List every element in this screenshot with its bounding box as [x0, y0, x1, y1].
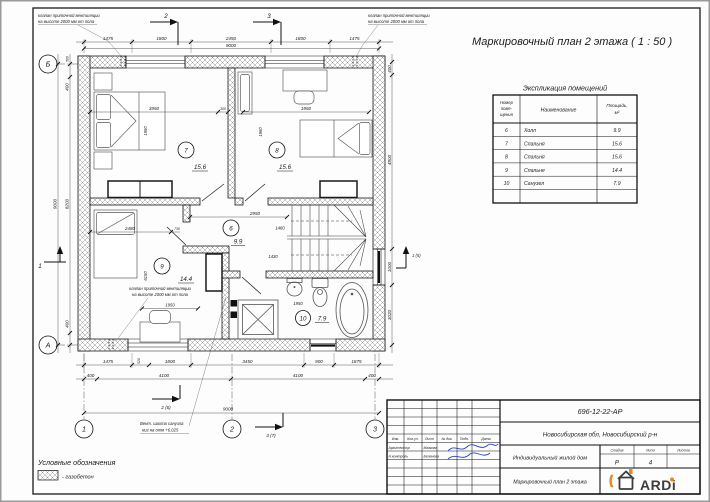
note-vent-valve: на высоте 2000 мм от пола [132, 292, 189, 297]
stamp-col: № док. [441, 437, 452, 441]
room-area: 14.4 [180, 276, 193, 283]
dim: 520 [137, 358, 141, 364]
drawing-canvas: 7 15.6 8 15.6 9 14.4 6 9.9 10 7.9 1 [0, 0, 710, 502]
dresser [320, 181, 357, 198]
dim: 400 [387, 65, 392, 73]
room-number: 8 [275, 147, 279, 154]
nightstand [94, 73, 112, 90]
list-value: 4 [649, 460, 653, 467]
room-area: 7.9 [318, 316, 327, 323]
drawing-sheet: 7 15.6 8 15.6 9 14.4 6 9.9 10 7.9 1 [0, 0, 710, 502]
dim: 3450 [242, 359, 253, 364]
dim-total: 9000 [53, 198, 58, 209]
project-object: Индивидуальный жилой дом [513, 455, 587, 462]
dim: 1950 [301, 106, 312, 111]
dim: 1960 [143, 126, 148, 136]
stamp-name: Беленева [424, 455, 440, 459]
stage-label: Стадия [610, 449, 623, 453]
room-number: 9 [160, 263, 164, 270]
cell-name: Спальня [524, 155, 545, 161]
stamp-col: Дата [480, 437, 490, 441]
cell-number: 6 [505, 128, 508, 134]
nightstand [94, 152, 112, 169]
axis-label: 1 [82, 425, 86, 434]
note-vent-shaft: низ на отм +6.025 [142, 428, 179, 433]
room-number: 10 [300, 315, 307, 322]
dim: 1950 [293, 301, 303, 306]
cell-number: 9 [505, 168, 508, 174]
col-header-area: м² [615, 110, 620, 115]
dim: 4100 [159, 373, 170, 378]
dim: 730 [174, 227, 180, 231]
section-label: 3 (7) [266, 433, 276, 438]
cell-area: 15.6 [612, 141, 622, 147]
stamp-col: Изм. [392, 437, 399, 441]
stamp-col: Лист [424, 437, 434, 441]
stamp-col: Подп. [460, 437, 469, 441]
section-label: 1 (5) [412, 253, 421, 258]
cell-name: Санузел [524, 181, 544, 187]
dim: 900 [315, 359, 323, 364]
dim: 400 [65, 83, 70, 91]
dim: 8200 [65, 198, 70, 209]
list-label: Лист [645, 449, 655, 453]
dim: 1000 [387, 261, 392, 272]
dim: 2450 [225, 36, 237, 41]
logo-i-dot [670, 478, 674, 482]
dim: 3950 [149, 106, 160, 111]
cell-name: Спальня [524, 141, 545, 147]
note-vent-valve: на высоте 2000 мм от пола [368, 19, 425, 24]
col-header-number: поме- [501, 106, 513, 111]
sheet-name: Маркировочный план 2 этажа [513, 479, 587, 486]
cell-area: 14.4 [612, 168, 622, 174]
logo-chimney [629, 469, 633, 474]
dim: 1475 [103, 36, 114, 41]
col-header-number: щения [500, 112, 514, 117]
note-vent-valve: клапан приточной вентиляции [129, 286, 191, 291]
room-area: 15.6 [279, 164, 292, 171]
dim: 6150 [143, 271, 148, 281]
note-vent-shaft: Вент. шахта санузла [140, 421, 184, 426]
dim: 2950 [249, 211, 261, 216]
col-header-area: Площадь, [606, 103, 627, 108]
cell-area: 7.9 [613, 181, 620, 187]
dim: 1430 [268, 254, 278, 259]
legend-title: Условные обозначения [37, 458, 116, 467]
section-label: 2 (6) [160, 405, 171, 410]
room-area: 9.9 [234, 239, 243, 246]
cell-name: Спальня [524, 168, 545, 174]
drawing-title: Маркировочный план 2 этажа ( 1 : 50 ) [472, 36, 672, 48]
dim: 400 [65, 320, 70, 328]
note-vent-valve: клапан приточной вентиляции [38, 13, 100, 18]
wardrobe [206, 254, 222, 291]
dim: 300 [220, 107, 226, 111]
dim: 1475 [103, 359, 114, 364]
plumbing-valve [231, 312, 238, 319]
cell-number: 10 [504, 181, 510, 187]
dim: 1480 [275, 226, 285, 231]
dim: 1475 [349, 36, 360, 41]
section-label: 3 [267, 13, 271, 20]
note-vent-valve: на высоте 2000 мм от пола [38, 19, 95, 24]
axis-label: 3 [373, 425, 377, 434]
note-vent-valve: клапан приточной вентиляции [368, 13, 430, 18]
dim: 2480 [124, 226, 136, 231]
room-area: 15.6 [194, 164, 207, 171]
hatch-swatch [38, 471, 58, 481]
dim: 400 [368, 373, 376, 378]
dim: 3020 [387, 309, 392, 320]
dim-total: 9000 [223, 407, 234, 412]
dim: 1875 [351, 359, 362, 364]
legend-item: - газобетон [62, 475, 94, 481]
col-header-number: Номер [500, 100, 514, 105]
dim: 4100 [293, 373, 304, 378]
room-number: 6 [229, 225, 233, 232]
section-label: 2 [163, 13, 168, 20]
cell-area: 9.9 [613, 128, 620, 134]
room-number: 7 [184, 147, 188, 154]
axis-label: Б [46, 60, 51, 69]
dim: 500 [66, 56, 70, 62]
cell-area: 15.6 [612, 155, 622, 161]
cell-number: 8 [505, 155, 508, 161]
desk [140, 322, 180, 342]
dim: 1800 [295, 36, 306, 41]
col-header-name: Наименование [541, 108, 577, 114]
dim: 4900 [387, 154, 392, 165]
explication-title: Экспликация помещений [523, 84, 607, 93]
plumbing-valve [231, 300, 238, 307]
axis-label: 2 [229, 425, 234, 434]
desk [283, 70, 327, 91]
dim: 1800 [156, 36, 167, 41]
project-location: Новосибирская обл, Новосибирский р-н [543, 432, 658, 439]
axis-label: А [45, 341, 51, 350]
dim-total: 9000 [226, 43, 237, 48]
chair [294, 91, 314, 104]
cell-name: Холл [523, 128, 536, 134]
lists-label: Листов [676, 449, 690, 453]
dim: 1950 [165, 303, 175, 308]
stamp-role: Н.контроль [389, 455, 409, 459]
doc-number: 696-12-22-АР [578, 407, 623, 416]
stamp-role: Архитектор [388, 446, 410, 450]
stamp-name: Мазкова [424, 446, 438, 450]
dim: 400 [87, 373, 95, 378]
dim: 1960 [258, 127, 263, 137]
section-label: 1 [38, 263, 41, 270]
chair [150, 311, 171, 324]
dim: 1800 [165, 359, 176, 364]
stamp-col: Кол.уч. [407, 437, 418, 441]
